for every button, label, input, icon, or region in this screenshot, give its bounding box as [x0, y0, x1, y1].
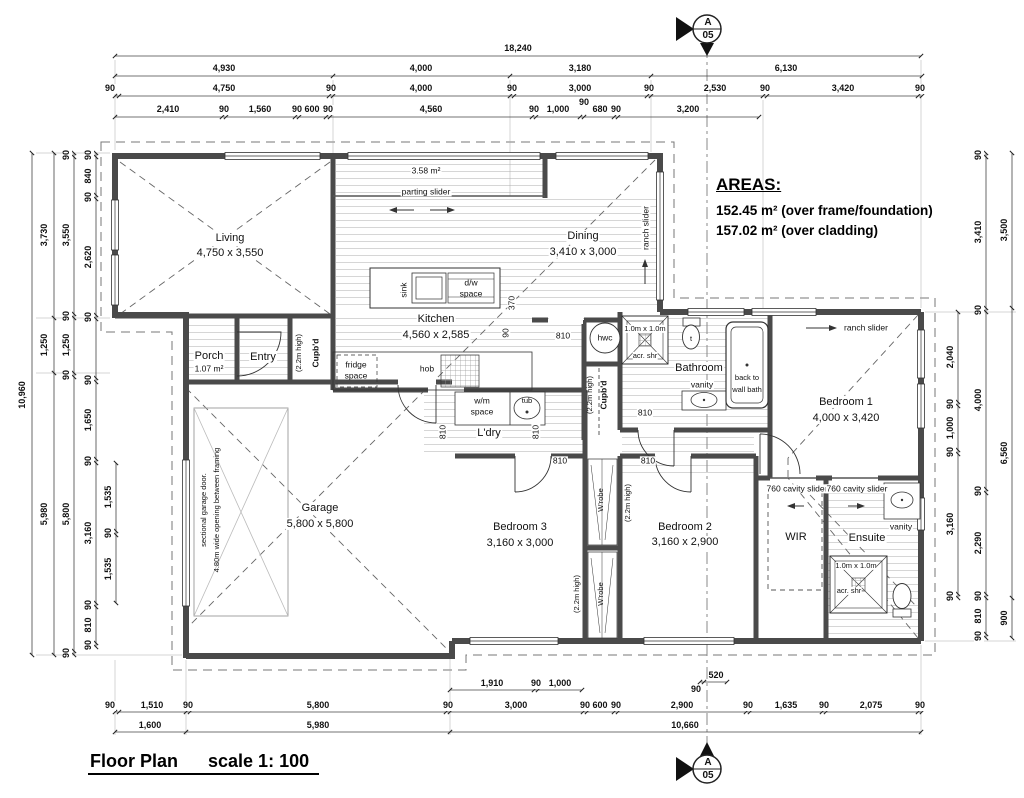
- hob-label: hob: [419, 364, 435, 373]
- dim-label: 90: [974, 485, 984, 497]
- drawing-title-name: Floor Plan: [90, 751, 178, 771]
- room-label-bathroom: Bathroom: [674, 362, 724, 374]
- dim-label: 90: [84, 639, 94, 651]
- dim-label: 3,000: [568, 84, 593, 94]
- shower-size-ensuite: 1.0m x 1.0m: [835, 562, 876, 570]
- dim-label: 90: [291, 105, 303, 115]
- areas-block: AREAS: 152.45 m² (over frame/foundation)…: [716, 176, 933, 240]
- dim-label: 90: [818, 701, 830, 711]
- bath-label-2: wall bath: [732, 386, 762, 394]
- dim-label: 2,900: [670, 701, 695, 711]
- cupboard-height-entry: (2.2m high): [295, 334, 303, 372]
- dim-label: 90: [84, 191, 94, 203]
- dim-label: 90: [914, 701, 926, 711]
- dim-label: 90: [62, 647, 72, 659]
- dim-label: 90: [914, 84, 926, 94]
- room-label-entry: Entry: [249, 351, 277, 363]
- dim-label: 90: [84, 374, 94, 386]
- wm-space-label-1: w/m: [473, 396, 491, 405]
- dim-label: 90: [579, 701, 591, 711]
- room-label-living: Living: [215, 232, 246, 244]
- fridge-label-1: fridge: [344, 360, 367, 369]
- cavity-slider-label-left: 760 cavity slider: [766, 484, 829, 493]
- dim-label: 90: [610, 701, 622, 711]
- room-size-kitchen: 4,560 x 2,585: [402, 329, 471, 341]
- deck-area-label: 3.58 m²: [411, 166, 442, 175]
- dim-label: 18,240: [503, 44, 533, 54]
- dim-label: 5,800: [62, 502, 72, 527]
- dim-label: 90: [84, 311, 94, 323]
- dim-label: 1,000: [546, 105, 571, 115]
- room-area-porch: 1.07 m²: [194, 364, 225, 373]
- dim-label: 3,160: [946, 512, 956, 537]
- dim-label: 810: [552, 456, 568, 465]
- dim-label: 810: [974, 607, 984, 624]
- dim-label: 90: [759, 84, 771, 94]
- dim-label: 900: [1000, 609, 1010, 626]
- room-label-wir: WIR: [784, 531, 807, 543]
- dim-label: 10,660: [670, 721, 700, 731]
- dim-label: 4,560: [419, 105, 444, 115]
- dim-label: 810: [637, 408, 653, 417]
- dim-label: 810: [555, 331, 571, 340]
- dim-label: 90: [104, 527, 114, 539]
- dim-label: 810: [438, 424, 447, 440]
- dim-label: 2,075: [859, 701, 884, 711]
- dim-label: 90: [84, 455, 94, 467]
- parting-slider-label: parting slider: [401, 187, 452, 196]
- dim-label: 6,560: [1000, 441, 1010, 466]
- section-marker-top-letter: A: [703, 18, 712, 28]
- dim-label: 90: [84, 149, 94, 161]
- dim-label: 680: [591, 105, 608, 115]
- dim-label: 810: [84, 616, 94, 633]
- dim-label: 3,730: [40, 223, 50, 248]
- dim-label: 5,980: [306, 721, 331, 731]
- areas-line-frame: 152.45 m² (over frame/foundation): [716, 201, 933, 221]
- dim-label: 90: [442, 701, 454, 711]
- dim-label: 1,650: [84, 408, 94, 433]
- dim-label: 3,500: [1000, 218, 1010, 243]
- dim-label: 90: [528, 105, 540, 115]
- dim-label: 6,130: [774, 64, 799, 74]
- dim-label: 3,550: [62, 223, 72, 248]
- section-marker-bottom-sheet: 05: [701, 771, 714, 781]
- dim-label: 5,800: [306, 701, 331, 711]
- dim-label: 90: [218, 105, 230, 115]
- dim-label: 1,635: [774, 701, 799, 711]
- dim-label: 3,160: [84, 521, 94, 546]
- dim-label: 90: [690, 685, 702, 695]
- dw-space-label-2: space: [459, 289, 484, 298]
- dim-label: 4,000: [974, 388, 984, 413]
- room-label-bedroom2: Bedroom 2: [657, 521, 713, 533]
- hwc-label: hwc: [596, 333, 613, 342]
- dim-label: 90: [974, 590, 984, 602]
- dim-label: 90: [104, 701, 116, 711]
- dim-label: 90: [643, 84, 655, 94]
- dim-label: 2,620: [84, 245, 94, 270]
- room-label-laundry: L'dry: [476, 427, 502, 439]
- floor-plan-sheet: 18,240 4,9304,0003,1806,130 904,750904,0…: [0, 0, 1024, 798]
- garage-door-note-2: 4.80m wide opening between framing: [213, 448, 221, 573]
- dim-label: 90: [578, 98, 590, 108]
- dim-label: 840: [84, 167, 94, 184]
- dim-label: 5,980: [40, 502, 50, 527]
- dim-label: 90: [84, 599, 94, 611]
- dim-label: 810: [640, 456, 656, 465]
- wardrobe-height-2: (2.2m high): [573, 575, 581, 613]
- dim-label: 90: [742, 701, 754, 711]
- dim-label: 3,180: [568, 64, 593, 74]
- room-label-porch: Porch: [194, 350, 225, 362]
- dim-label: 1,535: [104, 557, 114, 582]
- dim-label: 1,535: [104, 485, 114, 510]
- dim-label: 90: [974, 630, 984, 642]
- dim-label: 1,600: [138, 721, 163, 731]
- wardrobe-label-1: W'robe: [597, 488, 605, 512]
- dim-label: 2,530: [703, 84, 728, 94]
- room-size-bedroom3: 3,160 x 3,000: [486, 537, 555, 549]
- dim-label: 1,000: [946, 416, 956, 441]
- wardrobe-height-1: (2.2m high): [624, 484, 632, 522]
- dim-label: 1,250: [40, 333, 50, 358]
- room-label-kitchen: Kitchen: [417, 313, 456, 325]
- dim-label: 90: [974, 149, 984, 161]
- dim-label: 2,040: [946, 345, 956, 370]
- dim-label: 90: [182, 701, 194, 711]
- dw-space-label-1: d/w: [463, 278, 478, 287]
- cavity-slider-label-right: 760 cavity slider: [826, 484, 889, 493]
- dim-label: 90: [610, 105, 622, 115]
- fridge-label-2: space: [344, 371, 369, 380]
- dim-label: 90: [62, 369, 72, 381]
- cupboard-label-hall: Cupb'd: [599, 380, 608, 411]
- tub-label: tub: [522, 397, 532, 405]
- wardrobe-label-2: W'robe: [597, 582, 605, 606]
- dim-label: 2,410: [156, 105, 181, 115]
- dim-label: 90: [974, 304, 984, 316]
- dim-label: 1,250: [62, 333, 72, 358]
- dim-label: 4,000: [409, 84, 434, 94]
- areas-heading: AREAS:: [716, 176, 933, 193]
- dim-label: 90: [530, 679, 542, 689]
- dim-label: 90: [62, 310, 72, 322]
- dim-label: 810: [531, 424, 540, 440]
- dim-label: 90: [946, 590, 956, 602]
- dim-label: 10,960: [18, 380, 28, 410]
- dim-label: 3,420: [831, 84, 856, 94]
- section-marker-bottom-letter: A: [703, 758, 712, 768]
- ranch-slider-label-dining: ranch slider: [641, 205, 650, 251]
- ranch-slider-label-bed1: ranch slider: [843, 323, 889, 332]
- vanity-label-ensuite: vanity: [889, 522, 913, 531]
- dim-label: 600: [591, 701, 608, 711]
- room-label-dining: Dining: [566, 230, 599, 242]
- dim-label: 4,930: [212, 64, 237, 74]
- dim-label: 90: [946, 398, 956, 410]
- room-label-ensuite: Ensuite: [848, 532, 887, 544]
- dim-label: 90: [322, 105, 334, 115]
- dim-label: 90: [62, 149, 72, 161]
- dim-label: 600: [303, 105, 320, 115]
- dim-label: 3,000: [504, 701, 529, 711]
- room-label-bedroom1: Bedroom 1: [818, 396, 874, 408]
- dim-label: 90: [501, 327, 510, 338]
- room-label-garage: Garage: [301, 502, 340, 514]
- room-label-bedroom3: Bedroom 3: [492, 521, 548, 533]
- section-marker-top-sheet: 05: [701, 31, 714, 41]
- sink-label: sink: [399, 281, 408, 298]
- dim-label: 1,000: [548, 679, 573, 689]
- dim-label: 90: [946, 446, 956, 458]
- dim-label: 520: [707, 671, 724, 681]
- dim-label: 90: [506, 84, 518, 94]
- shower-size-bathroom: 1.0m x 1.0m: [624, 325, 665, 333]
- dim-label: 4,000: [409, 64, 434, 74]
- drawing-title-scale: scale 1: 100: [208, 751, 309, 771]
- dim-label: 90: [325, 84, 337, 94]
- cupboard-label-entry: Cupb'd: [311, 338, 320, 369]
- garage-door-note-1: sectional garage door.: [200, 473, 208, 547]
- room-size-living: 4,750 x 3,550: [196, 247, 265, 259]
- dim-label: 4,750: [212, 84, 237, 94]
- wm-space-label-2: space: [470, 407, 495, 416]
- shower-type-ensuite: acr. shr: [837, 587, 862, 595]
- cupboard-height-hall: (2.2m high): [586, 376, 594, 414]
- room-size-bedroom1: 4,000 x 3,420: [812, 412, 881, 424]
- drawing-title: Floor Planscale 1: 100: [88, 752, 319, 775]
- dim-label: 370: [507, 295, 516, 311]
- dim-label: 90: [104, 84, 116, 94]
- room-size-dining: 3,410 x 3,000: [549, 246, 618, 258]
- room-size-bedroom2: 3,160 x 2,900: [651, 536, 720, 548]
- dim-label: 3,200: [676, 105, 701, 115]
- toilet-label: t: [690, 335, 692, 343]
- dim-label: 2,290: [974, 531, 984, 556]
- dim-label: 1,560: [248, 105, 273, 115]
- areas-line-cladding: 157.02 m² (over cladding): [716, 221, 933, 241]
- dim-label: 1,510: [140, 701, 165, 711]
- dim-label: 1,910: [480, 679, 505, 689]
- room-size-garage: 5,800 x 5,800: [286, 518, 355, 530]
- dim-label: 3,410: [974, 220, 984, 245]
- shower-type-bathroom: acr. shr: [633, 352, 658, 360]
- bath-label-1: back to: [735, 374, 759, 382]
- vanity-label-bathroom: vanity: [690, 380, 714, 389]
